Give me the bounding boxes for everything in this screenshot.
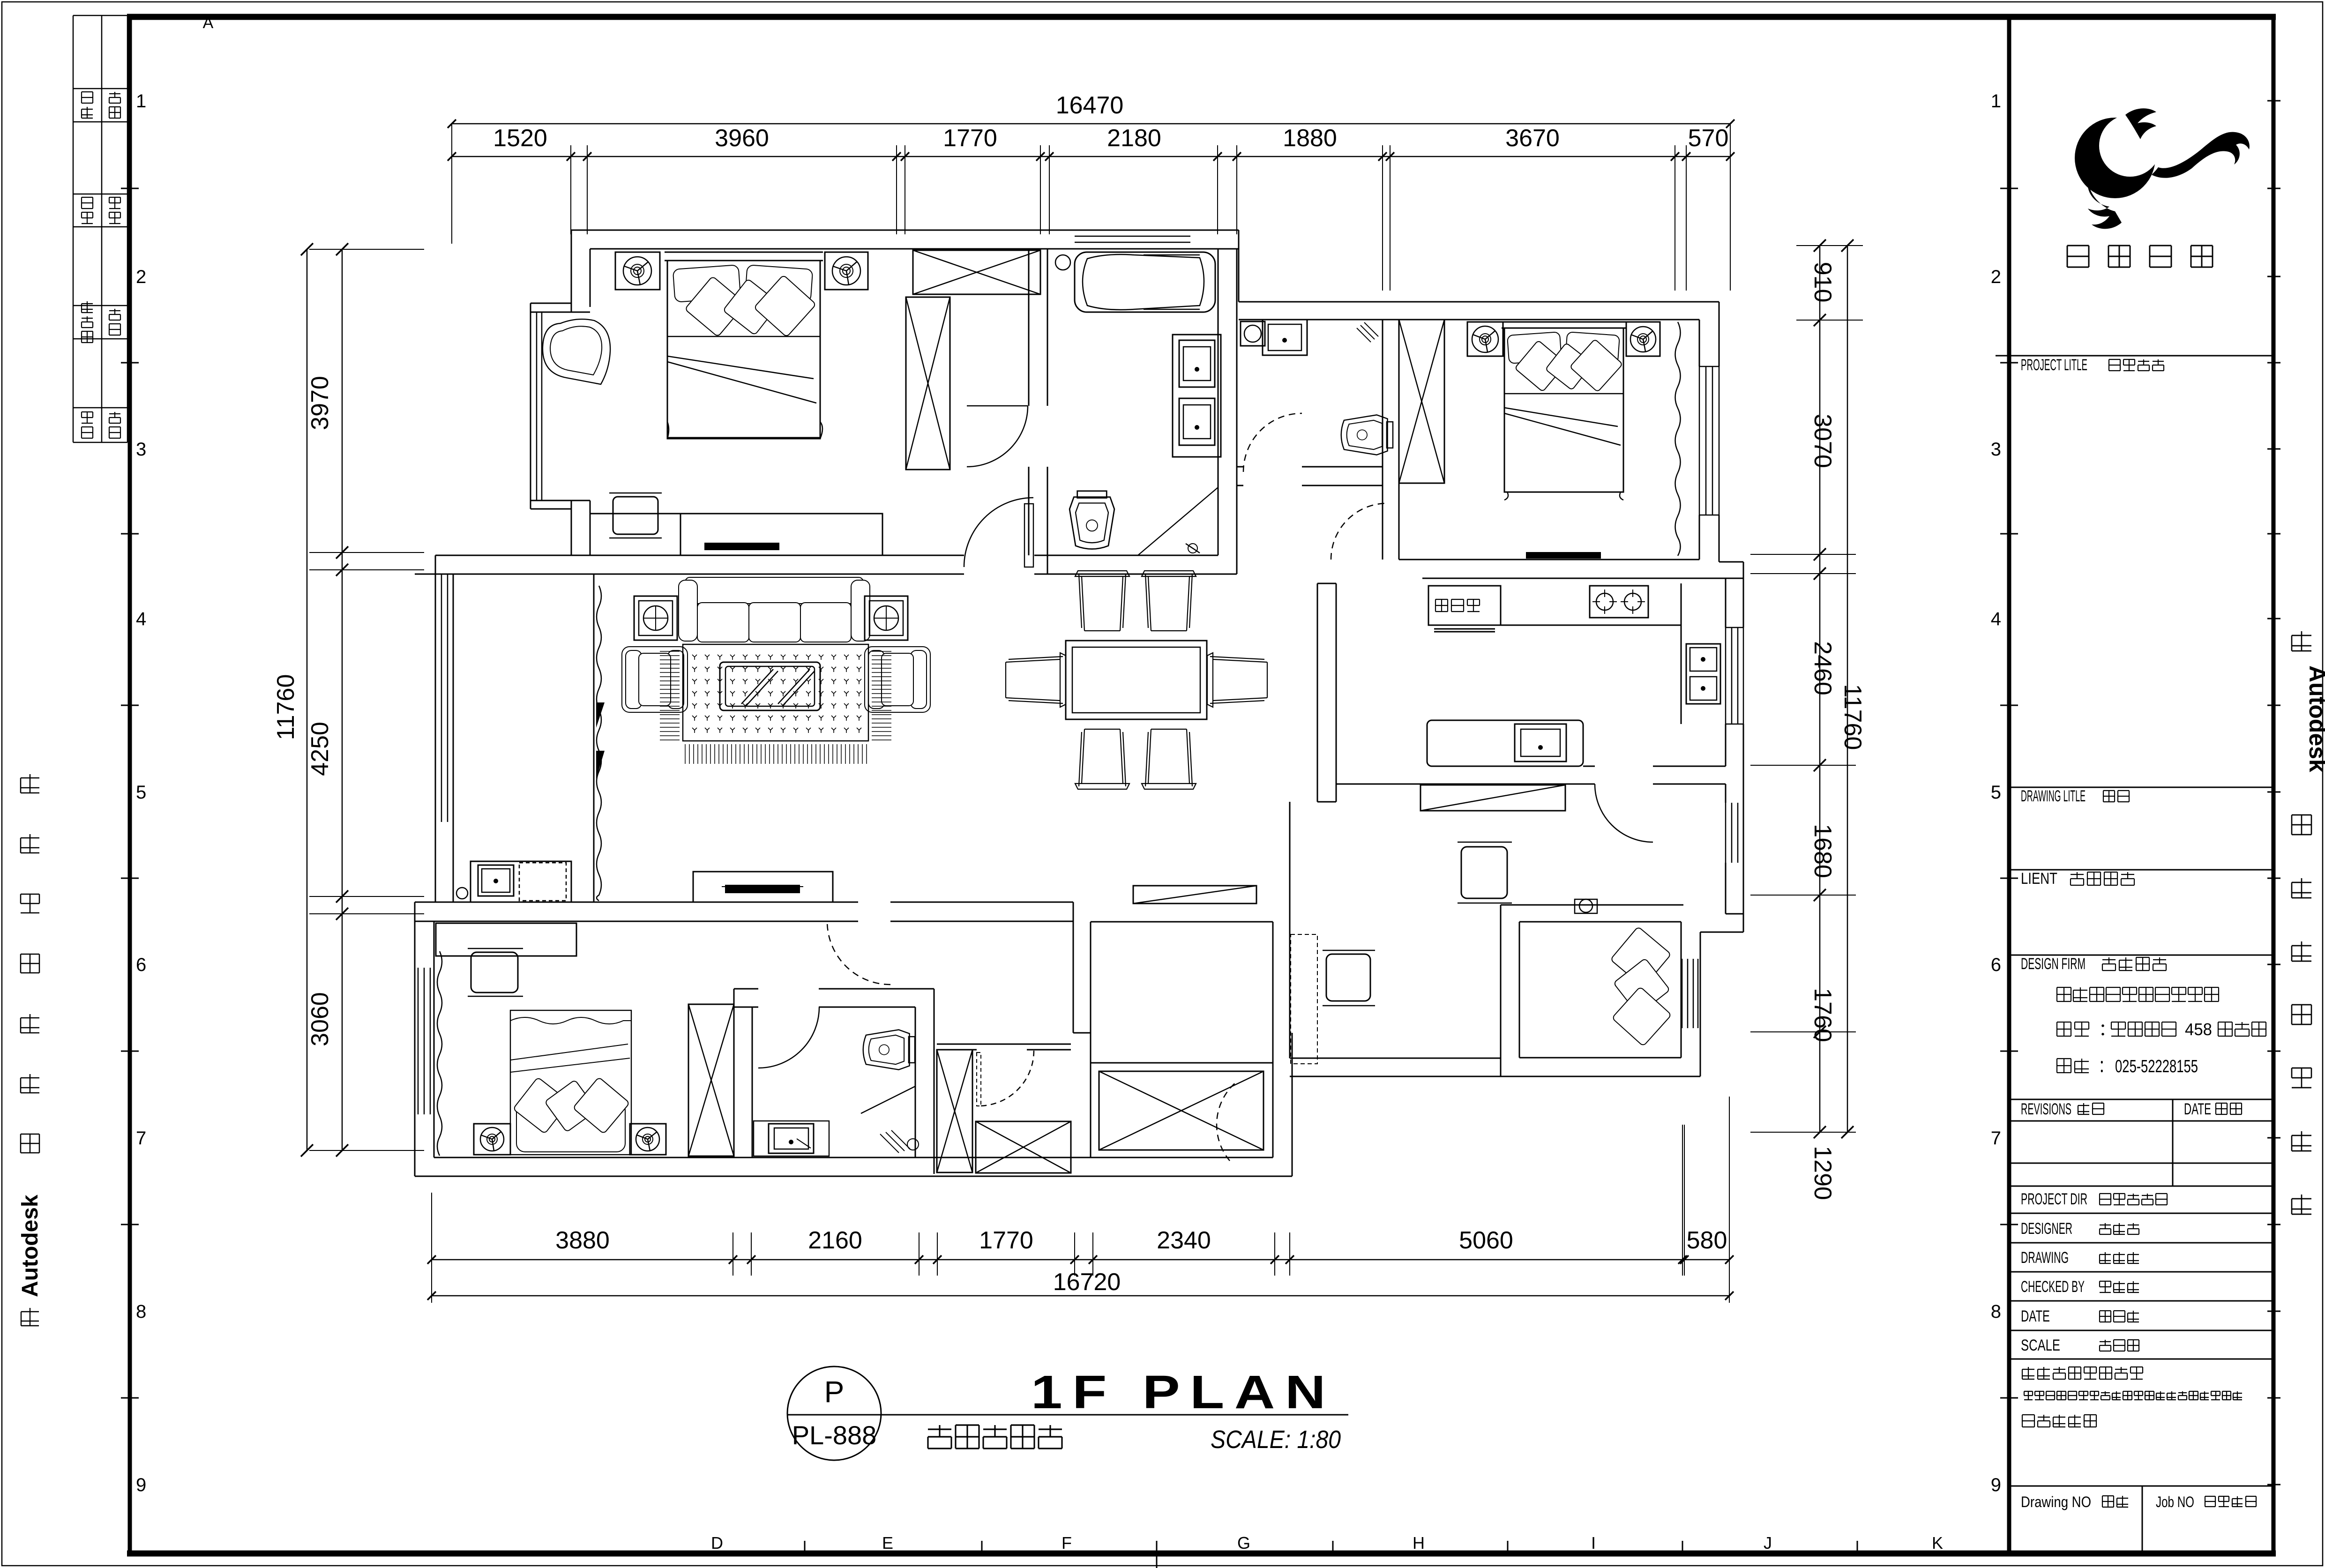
svg-text:458: 458	[2185, 1020, 2212, 1039]
svg-text:4250: 4250	[307, 722, 334, 776]
svg-text:1760: 1760	[1809, 988, 1836, 1042]
svg-text:DATE: DATE	[2021, 1307, 2050, 1325]
svg-text:6: 6	[1991, 955, 2001, 975]
svg-text:Autodesk: Autodesk	[18, 1195, 43, 1297]
svg-text:4: 4	[1991, 609, 2001, 629]
svg-text:D: D	[711, 1533, 723, 1553]
svg-text:CHECKED BY: CHECKED BY	[2021, 1278, 2085, 1296]
svg-text:SCALE: SCALE	[2021, 1337, 2060, 1354]
svg-text:1880: 1880	[1283, 125, 1337, 152]
svg-text:9: 9	[136, 1475, 146, 1495]
svg-text:1F PLAN: 1F PLAN	[1031, 1366, 1336, 1419]
svg-text:16720: 16720	[1053, 1269, 1121, 1296]
svg-text:5060: 5060	[1459, 1227, 1513, 1254]
svg-text:PROJECT DIR: PROJECT DIR	[2021, 1190, 2087, 1208]
svg-text:I: I	[1591, 1533, 1596, 1553]
svg-text:2340: 2340	[1157, 1227, 1211, 1254]
svg-text:REVISIONS: REVISIONS	[2021, 1100, 2071, 1118]
svg-text:DRAWING: DRAWING	[2021, 1249, 2069, 1267]
svg-text:： 025-52228155: ： 025-52228155	[2099, 1057, 2198, 1076]
svg-text:8: 8	[136, 1301, 146, 1322]
svg-text:2180: 2180	[1107, 125, 1161, 152]
svg-text:3670: 3670	[1505, 125, 1560, 152]
svg-text:G: G	[1237, 1533, 1250, 1553]
svg-text:3070: 3070	[1809, 414, 1836, 468]
svg-text:11760: 11760	[1839, 684, 1866, 750]
svg-text:2: 2	[136, 267, 146, 287]
svg-text:910: 910	[1809, 262, 1836, 303]
svg-text:570: 570	[1688, 125, 1729, 152]
svg-text:3880: 3880	[555, 1227, 610, 1254]
svg-text:1520: 1520	[493, 125, 547, 152]
svg-text:7: 7	[136, 1128, 146, 1149]
svg-text:1770: 1770	[943, 125, 997, 152]
svg-text:DESIGN FIRM: DESIGN FIRM	[2021, 955, 2086, 973]
svg-text:5: 5	[1991, 782, 2001, 803]
svg-text:LIENT: LIENT	[2021, 870, 2057, 888]
svg-text:6: 6	[136, 955, 146, 975]
svg-text:Autodesk: Autodesk	[2304, 665, 2325, 772]
svg-text:PROJECT LITLE: PROJECT LITLE	[2021, 356, 2087, 374]
svg-text:3: 3	[136, 439, 146, 460]
svg-text:DESIGNER: DESIGNER	[2021, 1220, 2072, 1238]
svg-text:Drawing NO: Drawing NO	[2021, 1493, 2091, 1510]
svg-text:9: 9	[1991, 1475, 2001, 1495]
svg-text:2460: 2460	[1809, 641, 1836, 695]
svg-text:2160: 2160	[808, 1227, 862, 1254]
svg-text:3960: 3960	[715, 125, 769, 152]
svg-text:4: 4	[136, 609, 146, 629]
svg-text:A: A	[203, 14, 214, 32]
svg-text:1: 1	[1991, 91, 2001, 112]
svg-text:580: 580	[1687, 1227, 1727, 1254]
svg-text:H: H	[1413, 1533, 1425, 1553]
svg-text:1680: 1680	[1809, 824, 1836, 878]
svg-text:16470: 16470	[1056, 92, 1124, 119]
svg-text:DRAWING LITLE: DRAWING LITLE	[2021, 787, 2086, 805]
svg-text:F: F	[1062, 1533, 1072, 1553]
svg-text:1770: 1770	[979, 1227, 1033, 1254]
svg-text:P: P	[824, 1375, 845, 1409]
svg-text:1290: 1290	[1809, 1146, 1836, 1200]
svg-text:3970: 3970	[307, 376, 334, 430]
svg-text:11760: 11760	[272, 674, 299, 740]
svg-text:2: 2	[1991, 267, 2001, 287]
svg-text:J: J	[1764, 1533, 1772, 1553]
svg-text:Job NO: Job NO	[2156, 1493, 2194, 1510]
svg-text:K: K	[1932, 1533, 1943, 1553]
svg-text:1: 1	[136, 91, 146, 112]
svg-text:5: 5	[136, 782, 146, 803]
svg-text:7: 7	[1991, 1128, 2001, 1149]
svg-text:DATE: DATE	[2184, 1100, 2211, 1118]
svg-text:E: E	[882, 1533, 893, 1553]
svg-text:SCALE: 1:80: SCALE: 1:80	[1211, 1426, 1341, 1454]
svg-text:PL-888: PL-888	[792, 1420, 877, 1450]
svg-text:3060: 3060	[307, 992, 334, 1046]
svg-text:3: 3	[1991, 439, 2001, 460]
svg-text:8: 8	[1991, 1301, 2001, 1322]
